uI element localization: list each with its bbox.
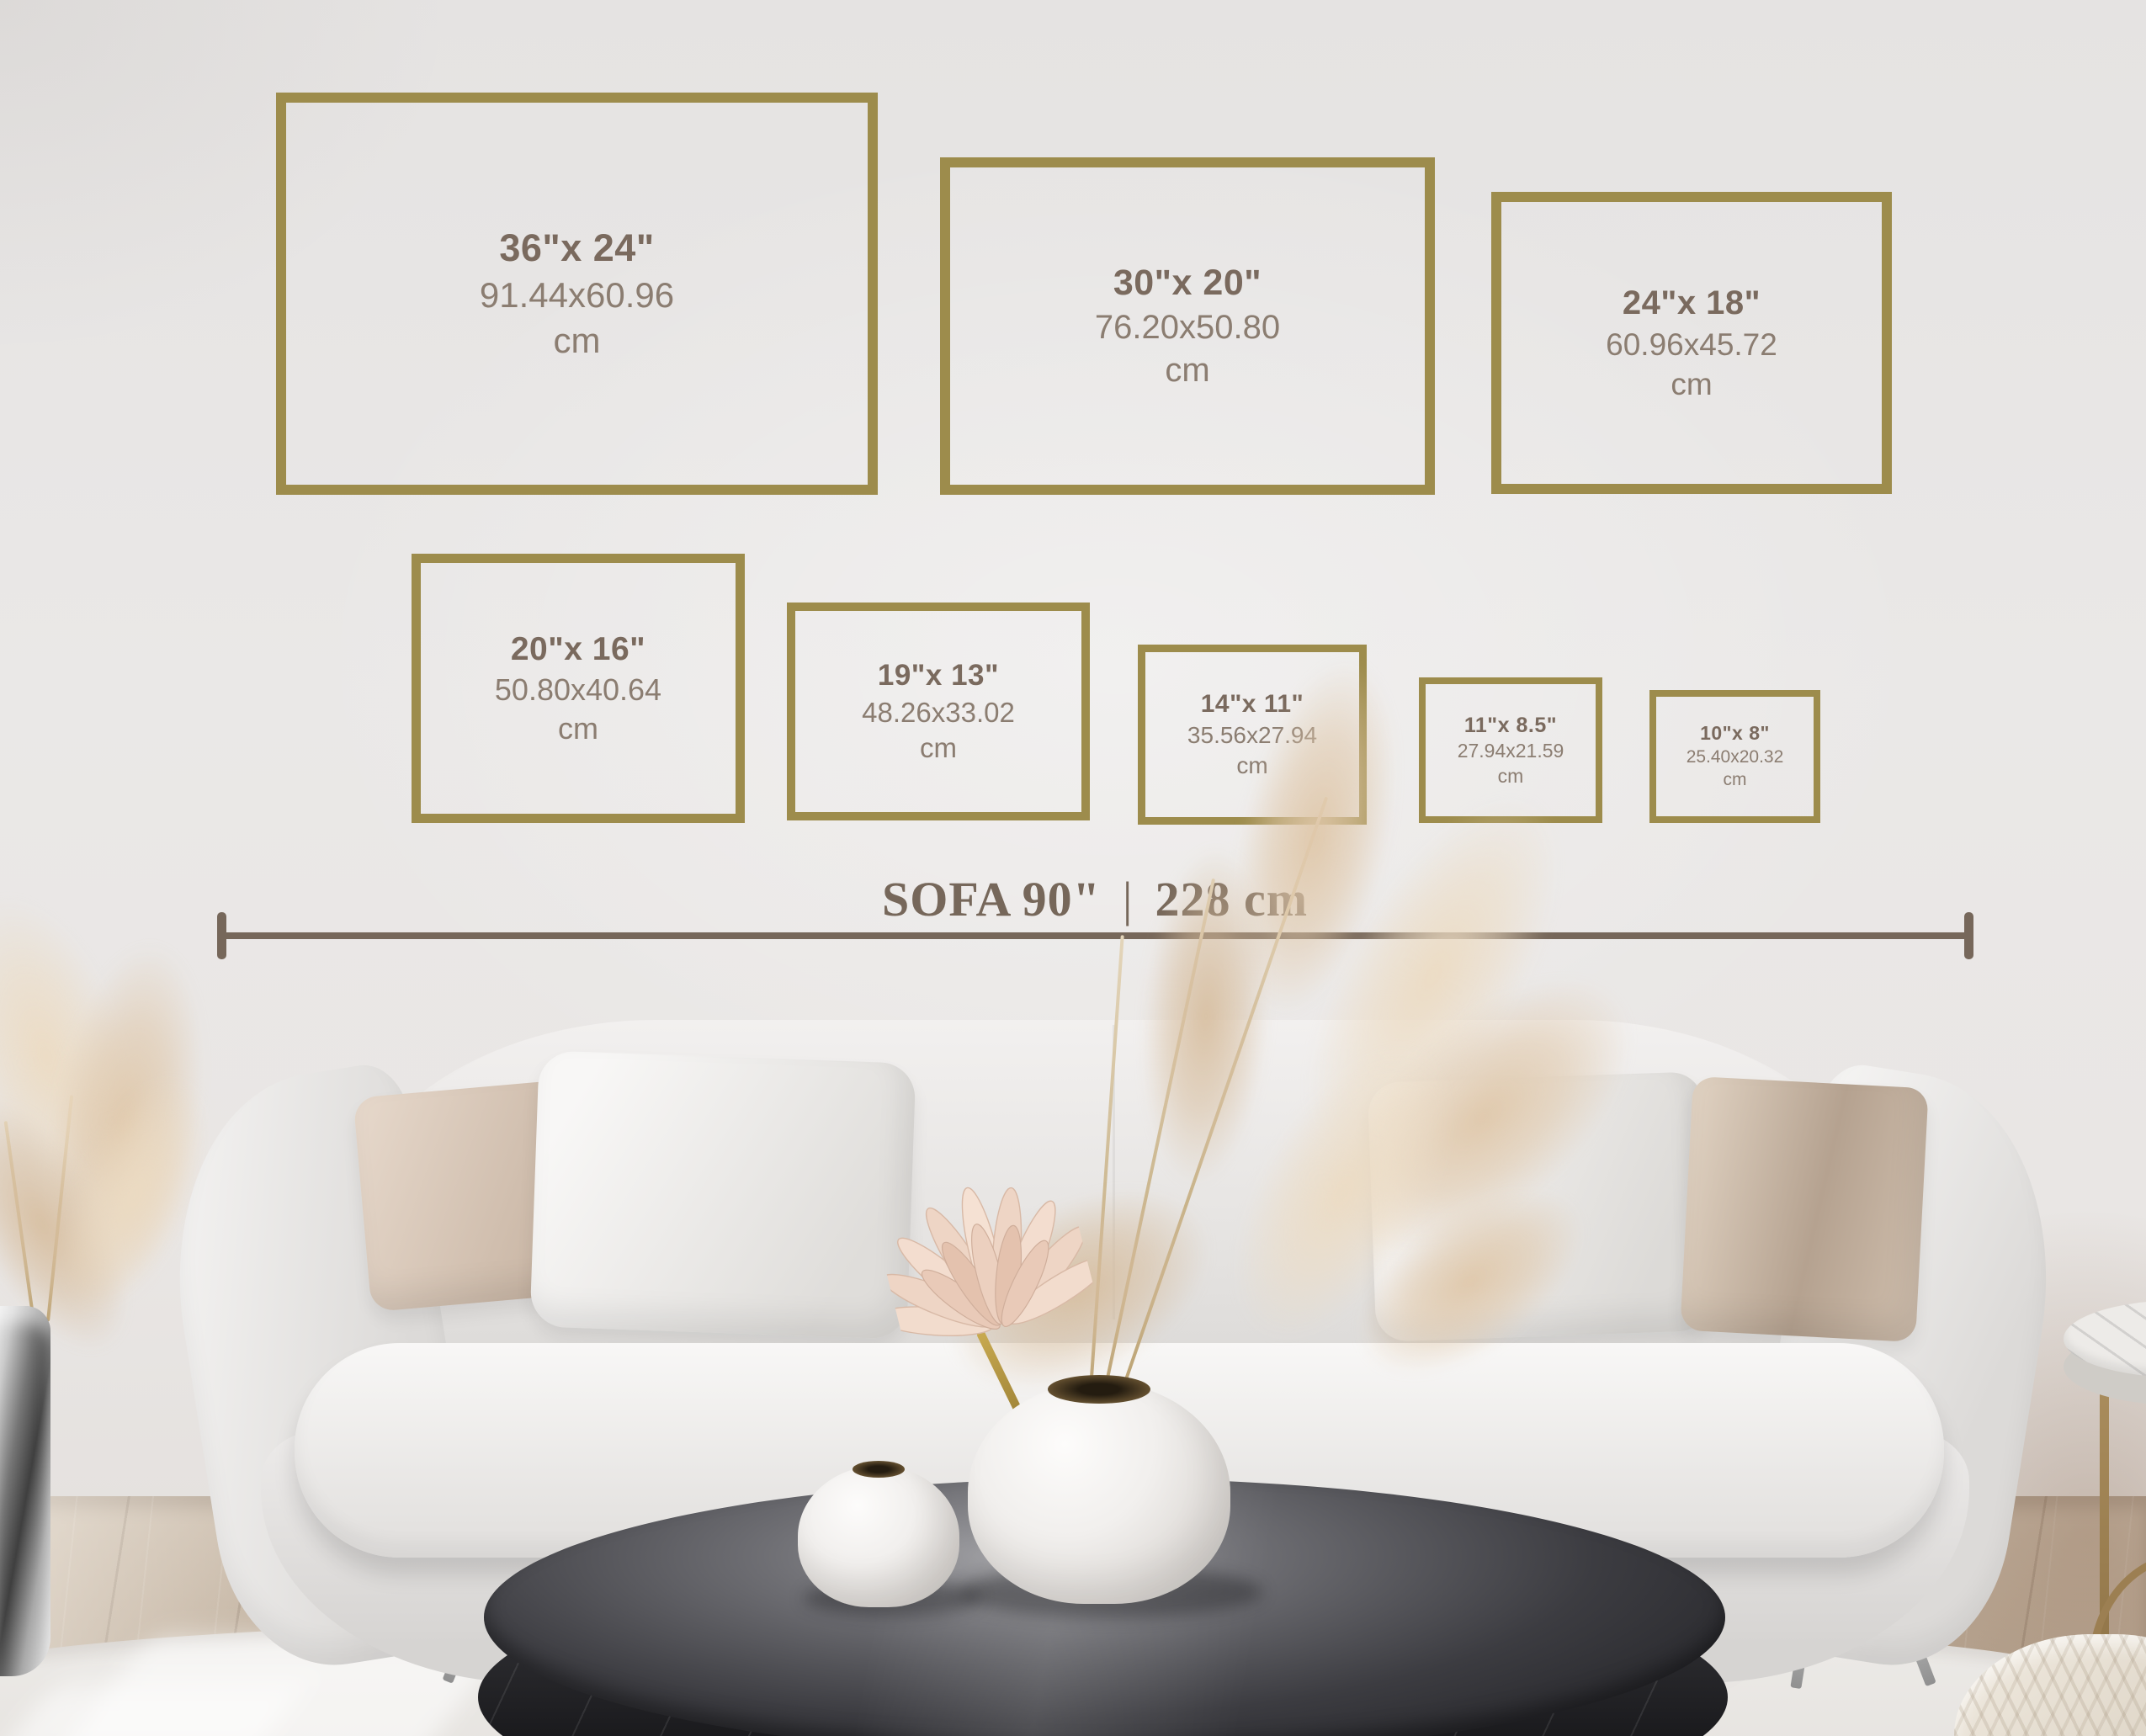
measurement-right-cap xyxy=(1964,912,1973,959)
frame-dimensions: 91.44x60.96 xyxy=(480,273,674,318)
size-frame-36x24: 36"x 24" 91.44x60.96 cm xyxy=(276,93,878,495)
frame-unit: cm xyxy=(1724,769,1747,792)
measurement-divider: | xyxy=(1101,872,1155,926)
size-frame-20x16: 20"x 16" 50.80x40.64 cm xyxy=(412,554,745,823)
frame-unit: cm xyxy=(1165,349,1209,392)
frame-unit: cm xyxy=(1498,764,1524,788)
frame-dimensions: 76.20x50.80 xyxy=(1095,306,1280,349)
frame-dimensions: 48.26x33.02 xyxy=(862,695,1015,730)
vase-opening xyxy=(853,1461,905,1478)
frame-title: 30"x 20" xyxy=(1113,260,1262,306)
frame-title: 20"x 16" xyxy=(511,629,645,671)
frame-title: 10"x 8" xyxy=(1700,721,1770,746)
frame-unit: cm xyxy=(920,730,957,766)
vase-opening xyxy=(1048,1375,1150,1404)
size-frame-24x18: 24"x 18" 60.96x45.72 cm xyxy=(1491,192,1892,494)
sofa-measurement-label: SOFA 90"|228 cm xyxy=(220,871,1969,927)
chrome-planter-pot xyxy=(0,1306,50,1676)
pillow-taupe-right xyxy=(1680,1076,1928,1342)
pillow-white-left xyxy=(529,1050,916,1339)
frame-dimensions: 60.96x45.72 xyxy=(1606,325,1777,364)
frame-unit: cm xyxy=(554,318,601,364)
frame-dimensions: 50.80x40.64 xyxy=(495,671,661,709)
sofa-measurement-line xyxy=(220,932,1969,939)
frame-dimensions: 25.40x20.32 xyxy=(1687,746,1784,769)
frame-dimensions: 27.94x21.59 xyxy=(1458,739,1564,763)
frame-unit: cm xyxy=(1671,364,1712,404)
size-frame-10x8: 10"x 8" 25.40x20.32 cm xyxy=(1649,690,1820,823)
frame-size-guide-scene: 36"x 24" 91.44x60.96 cm 30"x 20" 76.20x5… xyxy=(0,0,2146,1736)
frame-title: 36"x 24" xyxy=(499,224,654,273)
size-frame-30x20: 30"x 20" 76.20x50.80 cm xyxy=(940,157,1435,495)
frame-unit: cm xyxy=(558,709,598,748)
frame-title: 19"x 13" xyxy=(878,657,999,695)
measurement-left-cap xyxy=(217,912,226,959)
sofa-width-imperial: SOFA 90" xyxy=(882,872,1101,926)
frame-title: 24"x 18" xyxy=(1623,282,1761,325)
size-frame-19x13: 19"x 13" 48.26x33.02 cm xyxy=(787,603,1090,820)
large-round-vase xyxy=(968,1382,1230,1604)
small-round-vase xyxy=(798,1466,959,1607)
frame-title: 11"x 8.5" xyxy=(1464,712,1557,739)
